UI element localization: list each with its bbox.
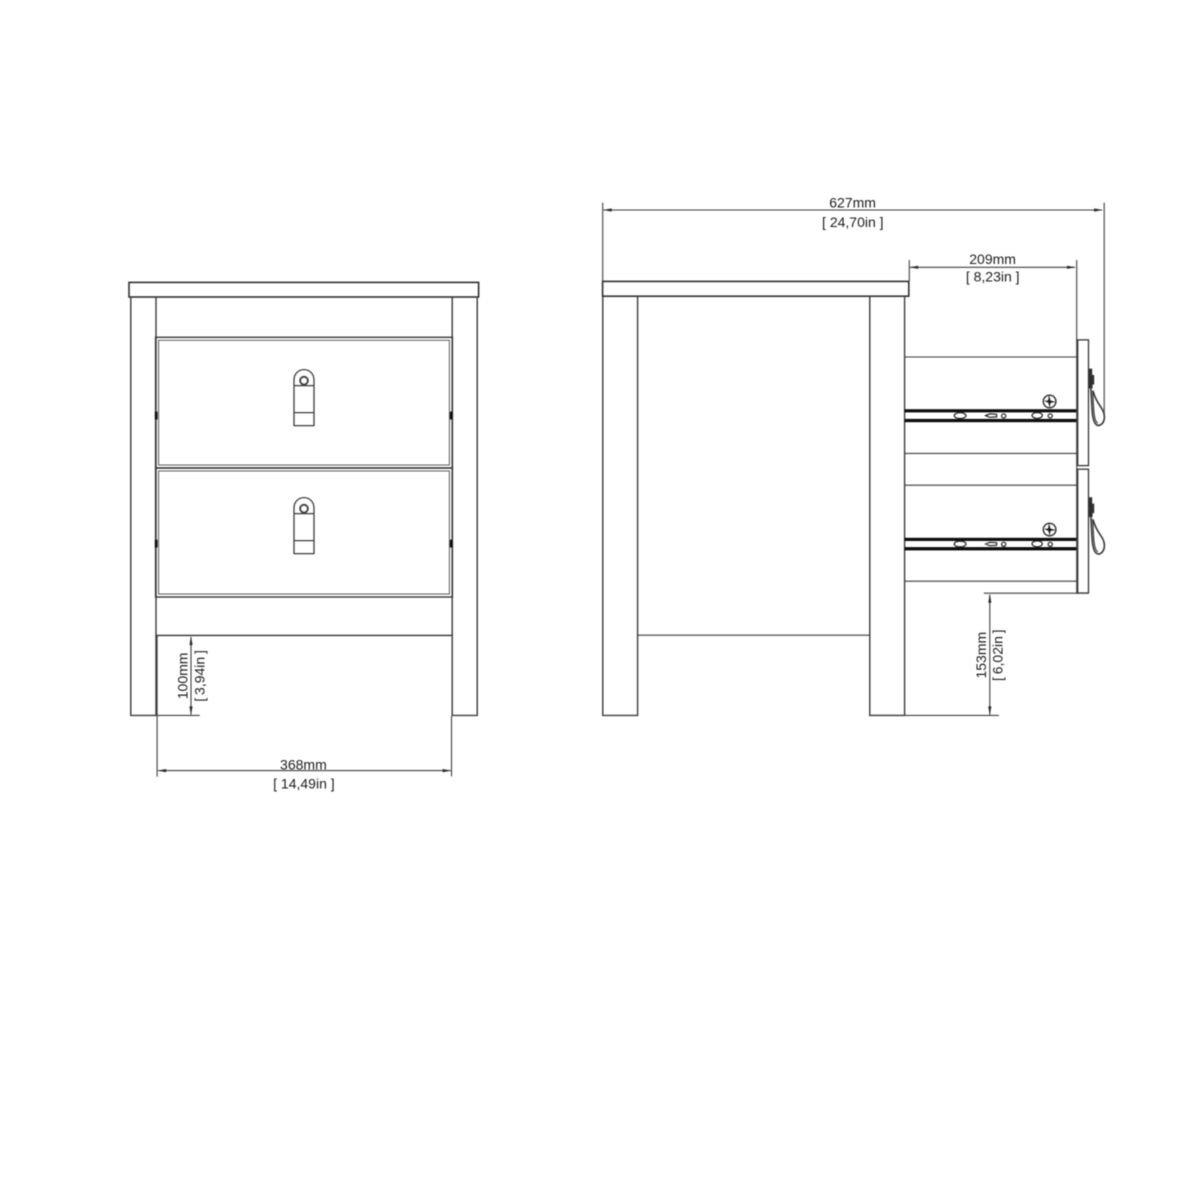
svg-text:153mm: 153mm [973,632,989,679]
svg-text:[ 24,70in ]: [ 24,70in ] [822,214,884,230]
svg-text:[ 8,23in ]: [ 8,23in ] [966,268,1020,284]
svg-text:[ 6,02in ]: [ 6,02in ] [990,629,1006,681]
svg-text:368mm: 368mm [280,757,327,773]
svg-text:627mm: 627mm [829,194,876,210]
svg-text:209mm: 209mm [969,251,1016,267]
svg-text:[ 14,49in ]: [ 14,49in ] [273,775,335,791]
svg-text:100mm: 100mm [175,653,191,700]
svg-text:[ 3,94in ]: [ 3,94in ] [192,650,208,702]
